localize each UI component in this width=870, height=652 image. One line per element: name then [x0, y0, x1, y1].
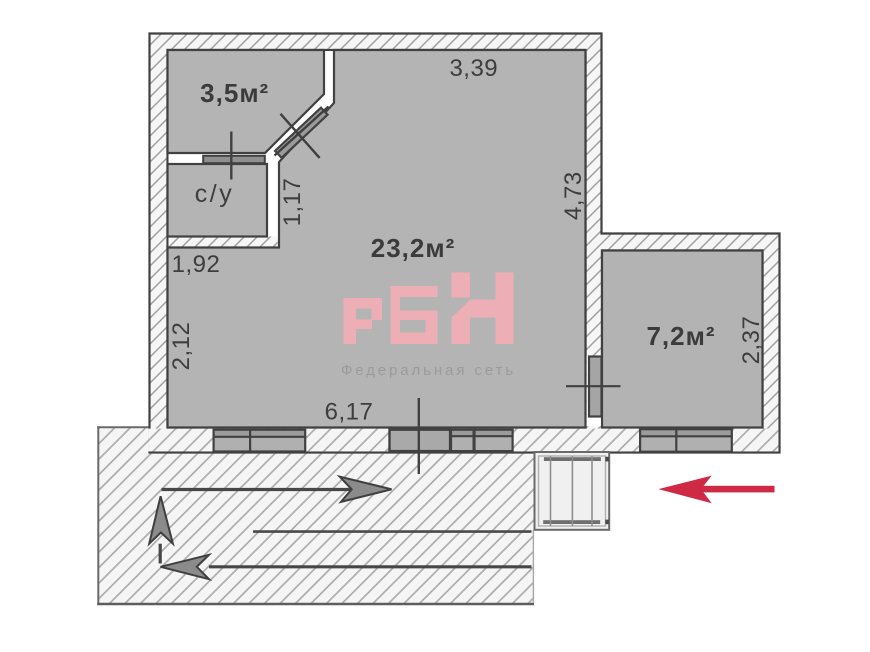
svg-text:6,17: 6,17 [325, 399, 374, 426]
svg-text:Федеральная сеть: Федеральная сеть [341, 362, 516, 379]
svg-text:7,2м²: 7,2м² [646, 321, 715, 351]
svg-text:23,2м²: 23,2м² [371, 233, 456, 263]
svg-text:1,92: 1,92 [172, 251, 221, 278]
svg-text:3,5м²: 3,5м² [200, 78, 269, 108]
svg-text:2,12: 2,12 [168, 322, 195, 371]
svg-text:3,39: 3,39 [449, 55, 498, 82]
svg-text:4,73: 4,73 [560, 171, 587, 220]
svg-text:1,17: 1,17 [279, 178, 306, 227]
svg-text:2,37: 2,37 [738, 316, 765, 365]
svg-text:с/у: с/у [195, 180, 234, 208]
